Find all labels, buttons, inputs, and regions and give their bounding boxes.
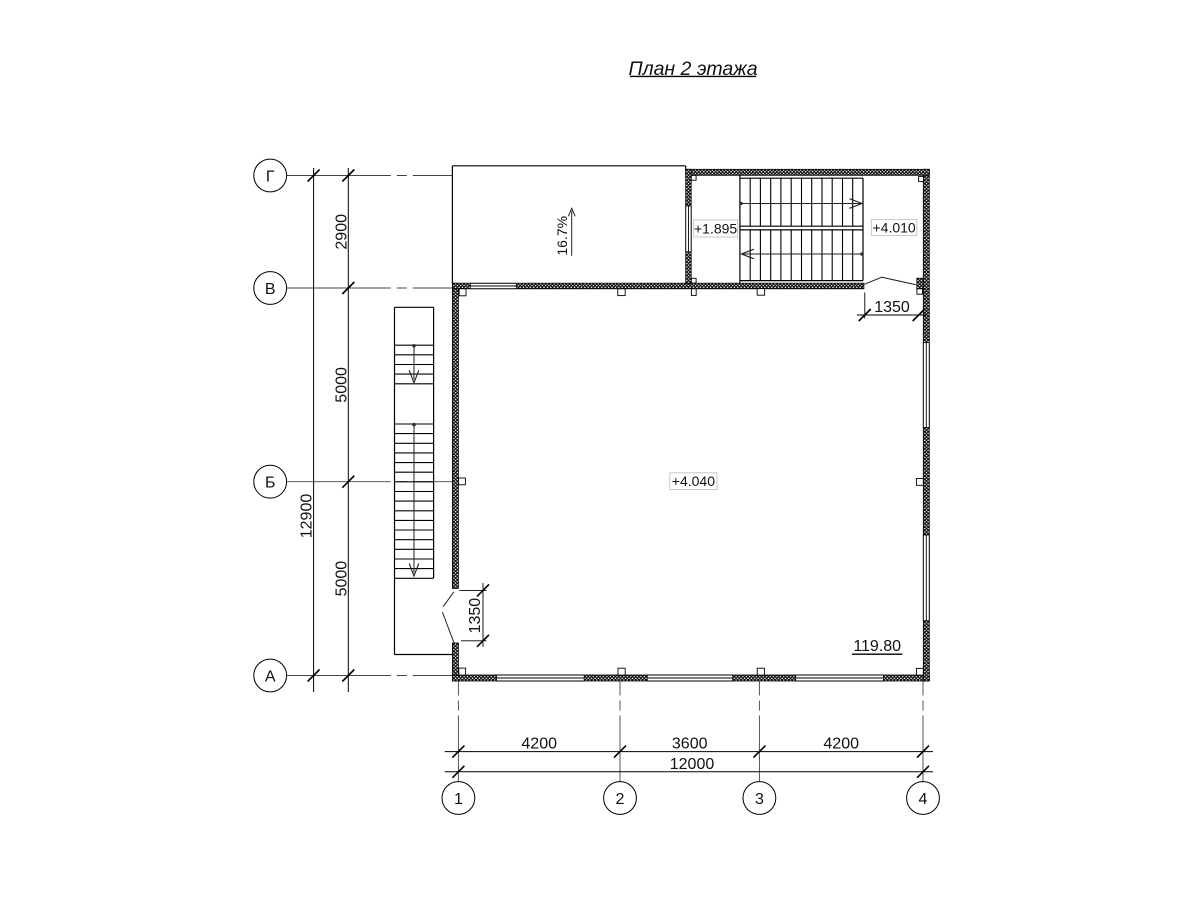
svg-text:4200: 4200 [823, 735, 859, 752]
svg-text:+4.010: +4.010 [872, 220, 915, 236]
svg-text:5000: 5000 [333, 367, 350, 403]
svg-text:4: 4 [919, 791, 928, 808]
svg-text:1350: 1350 [874, 299, 910, 316]
svg-text:Б: Б [265, 475, 276, 492]
svg-text:В: В [265, 281, 276, 298]
svg-text:5000: 5000 [333, 561, 350, 597]
svg-text:12000: 12000 [670, 756, 715, 773]
svg-text:2900: 2900 [333, 214, 350, 250]
svg-text:+1.895: +1.895 [694, 220, 737, 236]
svg-text:3600: 3600 [672, 735, 708, 752]
svg-text:12900: 12900 [298, 494, 315, 539]
svg-text:Г: Г [266, 168, 275, 185]
svg-text:1: 1 [454, 791, 463, 808]
svg-text:2: 2 [616, 791, 625, 808]
svg-text:4200: 4200 [521, 735, 557, 752]
svg-text:16.7%: 16.7% [554, 216, 570, 256]
svg-text:119.80: 119.80 [853, 638, 901, 655]
svg-text:1350: 1350 [467, 598, 484, 634]
svg-text:А: А [265, 668, 276, 685]
svg-text:3: 3 [755, 791, 764, 808]
svg-text:+4.040: +4.040 [672, 473, 715, 489]
